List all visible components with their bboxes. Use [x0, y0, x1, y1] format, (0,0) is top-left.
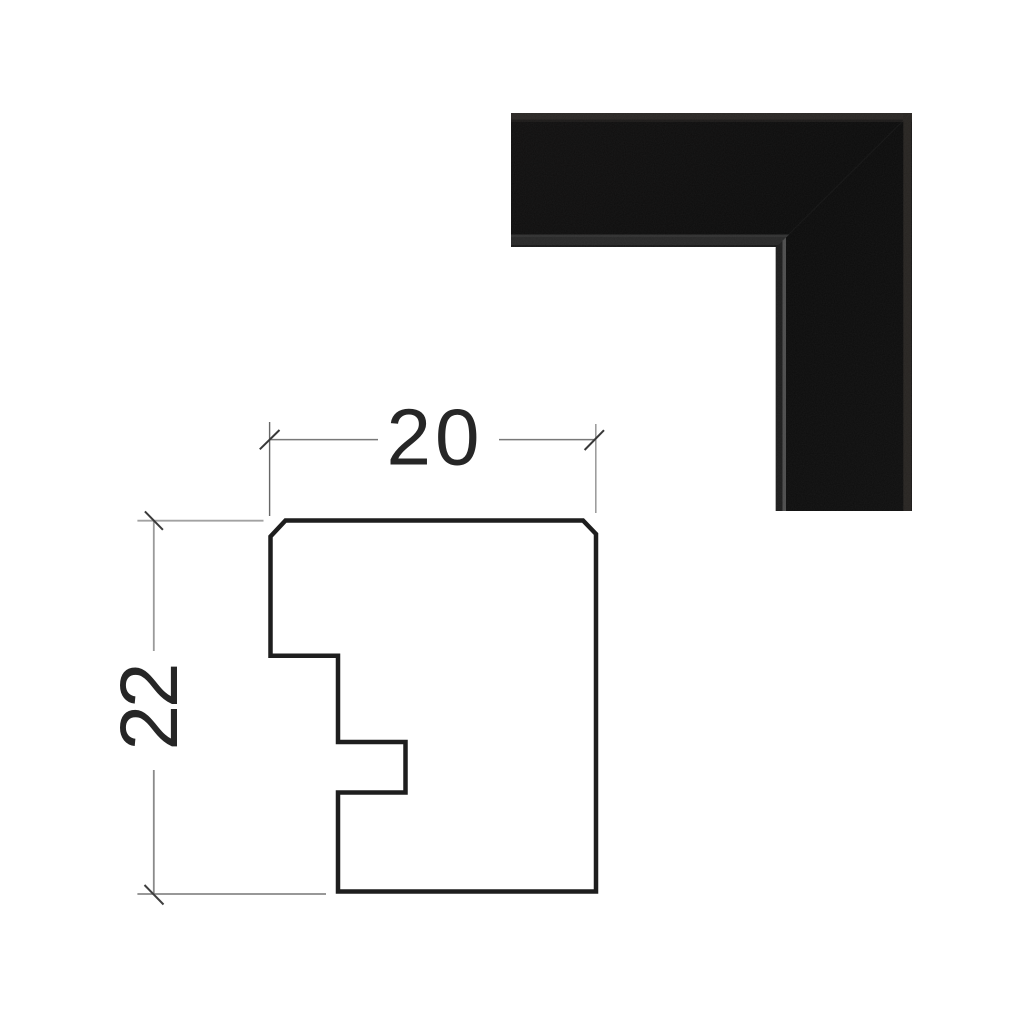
svg-text:22: 22	[104, 663, 195, 751]
svg-text:20: 20	[387, 393, 480, 482]
